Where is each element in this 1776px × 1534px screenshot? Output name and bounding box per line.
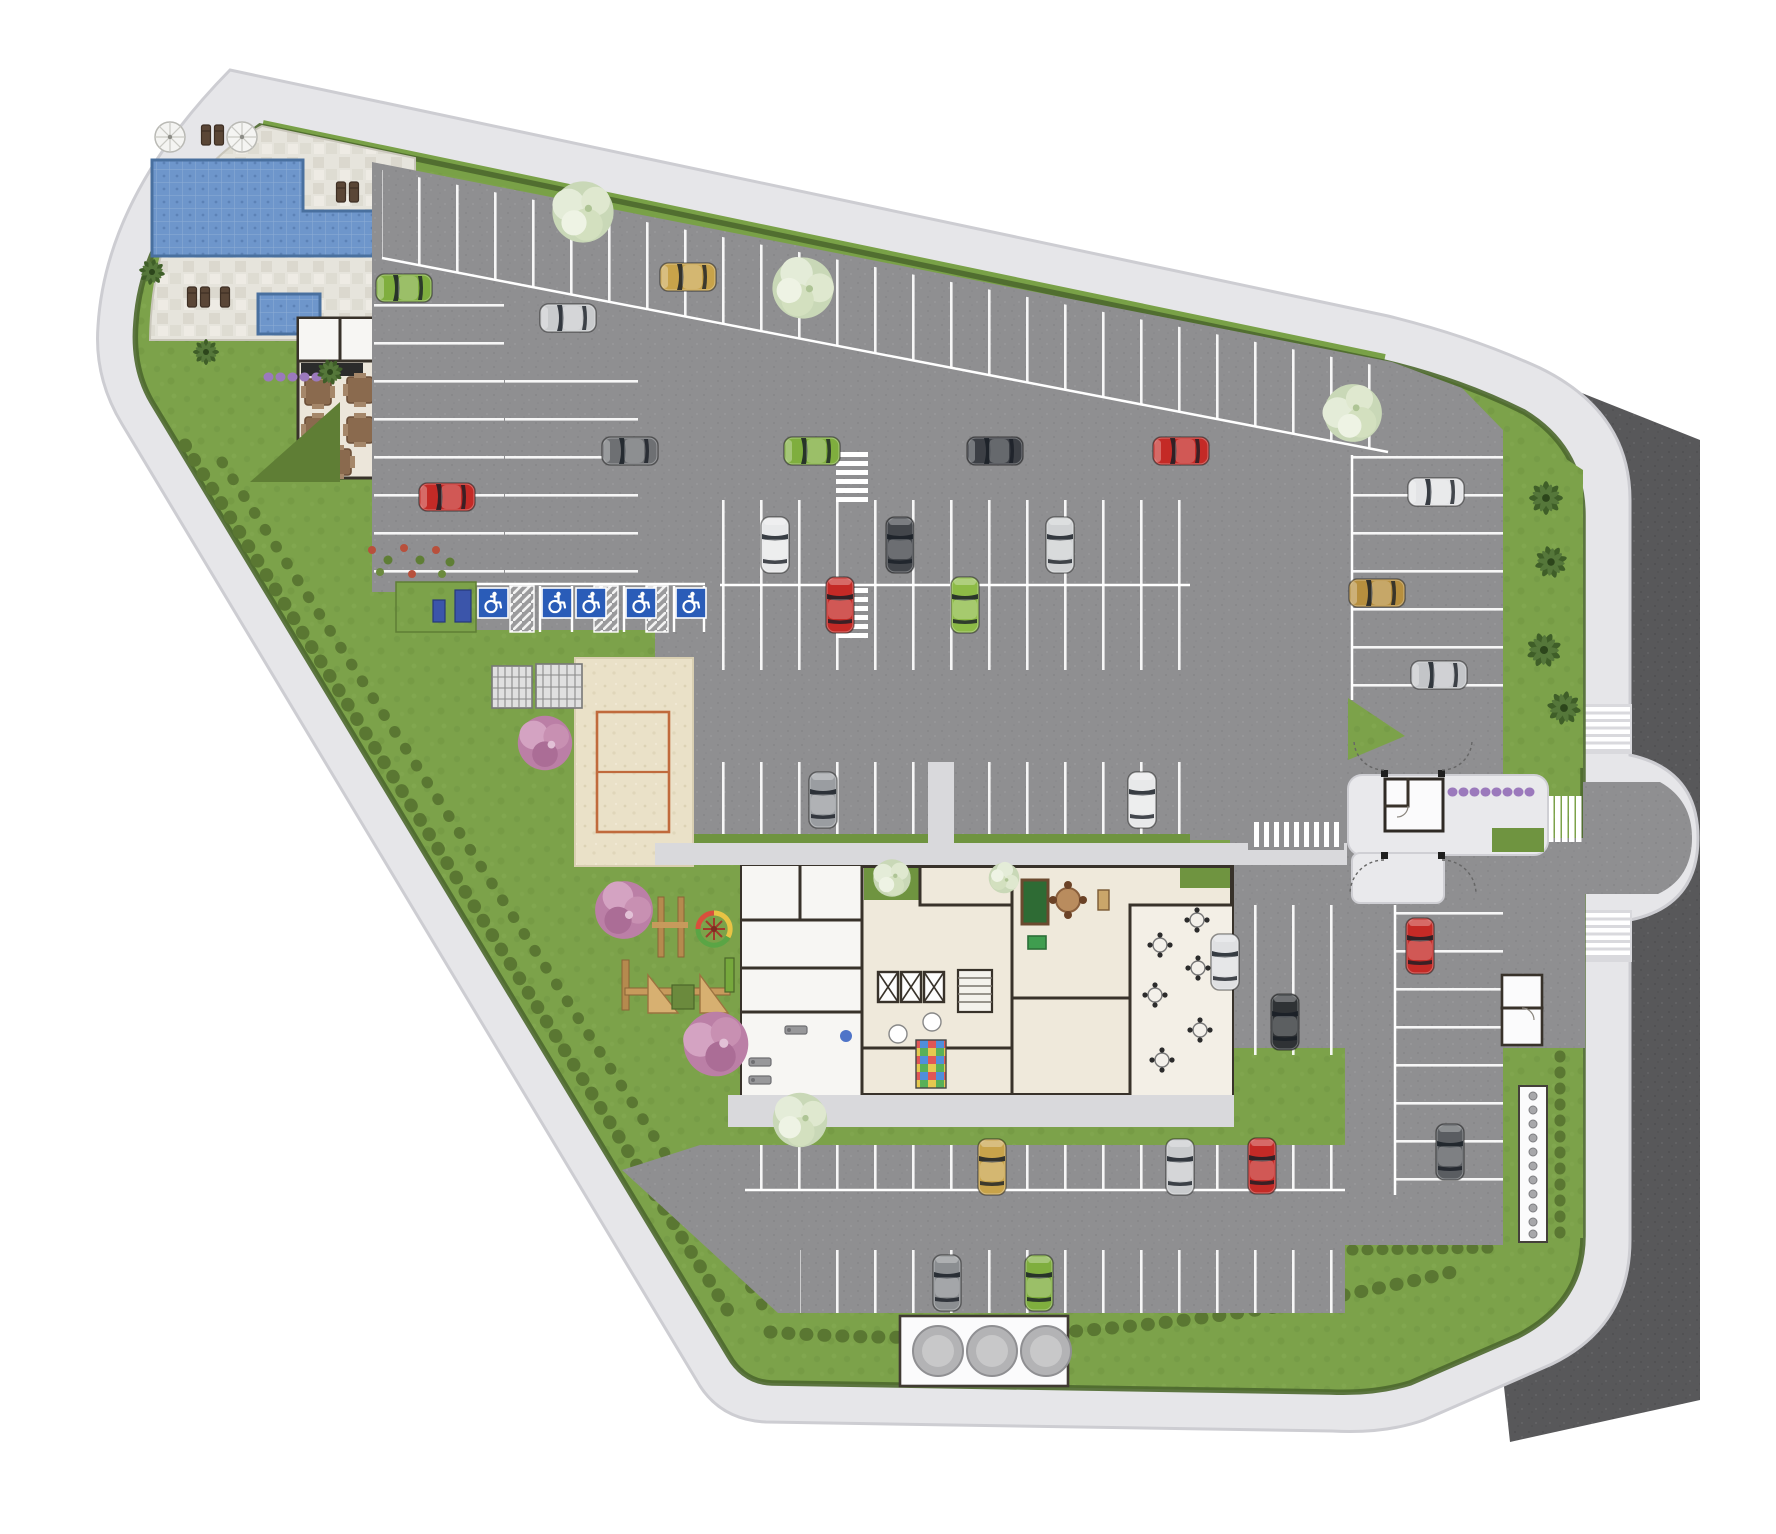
- exercise-ball: [840, 1030, 852, 1042]
- lounge-chair: [201, 287, 210, 307]
- car: [1271, 994, 1299, 1050]
- exercise-equipment: [455, 590, 471, 622]
- car: [419, 483, 475, 511]
- stalls-middle-upper: [720, 500, 1190, 585]
- party-room: [1130, 905, 1232, 1095]
- car: [933, 1255, 961, 1311]
- car: [1128, 772, 1156, 828]
- palm-tree-icon: [1529, 481, 1563, 515]
- guardhouse: [1385, 779, 1443, 831]
- stairs: [958, 970, 992, 1012]
- car: [1411, 661, 1467, 689]
- lounge-chair: [188, 287, 197, 307]
- parasol-icon: [155, 122, 185, 152]
- car: [826, 577, 854, 633]
- lounge-chair: [221, 287, 230, 307]
- car: [1166, 1139, 1194, 1195]
- car: [978, 1139, 1006, 1195]
- lounge-chair: [215, 125, 224, 145]
- lounge-chair: [337, 182, 346, 202]
- climbing-frame: [652, 922, 688, 928]
- play-mat: [916, 1040, 946, 1088]
- parasol-icon: [227, 122, 257, 152]
- water-tanks: [900, 1316, 1071, 1386]
- stalls-west-column: [374, 295, 504, 587]
- foosball-table: [1098, 890, 1109, 910]
- car: [1408, 478, 1464, 506]
- stalls-building-north: [655, 762, 1190, 835]
- exercise-equipment: [433, 600, 445, 622]
- street-entry-mouth: [1583, 782, 1692, 894]
- lounge-chair: [202, 125, 211, 145]
- walkway-stub: [928, 762, 954, 845]
- car: [540, 304, 596, 332]
- green-patch: [1180, 868, 1230, 888]
- verge-building-north: [655, 834, 1190, 844]
- exercise-area: [396, 582, 476, 632]
- car: [951, 577, 979, 633]
- sidewalk-crosswalk-south: [1583, 910, 1632, 962]
- car: [1025, 1255, 1053, 1311]
- walkway-north: [655, 843, 1347, 865]
- stalls-west-column-2: [505, 380, 638, 587]
- car: [1436, 1124, 1464, 1180]
- terrace-table: [343, 373, 377, 407]
- car: [660, 263, 716, 291]
- kids-table: [889, 1025, 907, 1043]
- site-plan-page: [0, 0, 1776, 1534]
- car: [1153, 437, 1209, 465]
- flowering-tree-icon: [552, 181, 613, 242]
- palm-tree-icon: [193, 339, 219, 365]
- site-plan-rendering: [0, 0, 1776, 1534]
- small-table: [1028, 936, 1046, 949]
- car: [1046, 517, 1074, 573]
- pink-tree-icon: [518, 716, 572, 770]
- technical-room: [1502, 975, 1542, 1045]
- sidewalk-crosswalk-north: [1583, 704, 1632, 754]
- lounge-chair: [350, 182, 359, 202]
- meter-row: [1519, 1086, 1547, 1242]
- car: [886, 517, 914, 573]
- car: [1211, 934, 1239, 990]
- apartment-building-floorplan: [742, 866, 1232, 1095]
- stalls-south-bottom: [800, 1250, 1345, 1313]
- car: [967, 437, 1023, 465]
- car: [376, 274, 432, 302]
- car: [602, 437, 658, 465]
- beach-sport-court: [575, 658, 693, 866]
- car: [1349, 579, 1405, 607]
- flowering-tree-icon: [873, 859, 910, 896]
- car: [1406, 918, 1434, 974]
- island-green-patch: [1492, 828, 1544, 852]
- kids-table: [923, 1013, 941, 1031]
- car: [809, 772, 837, 828]
- pergola-trellis: [492, 664, 582, 708]
- car: [761, 517, 789, 573]
- car: [784, 437, 840, 465]
- billiards-table: [1022, 880, 1048, 924]
- internal-crosswalk: [1248, 818, 1344, 850]
- terrace-table: [343, 413, 377, 447]
- car: [1248, 1138, 1276, 1194]
